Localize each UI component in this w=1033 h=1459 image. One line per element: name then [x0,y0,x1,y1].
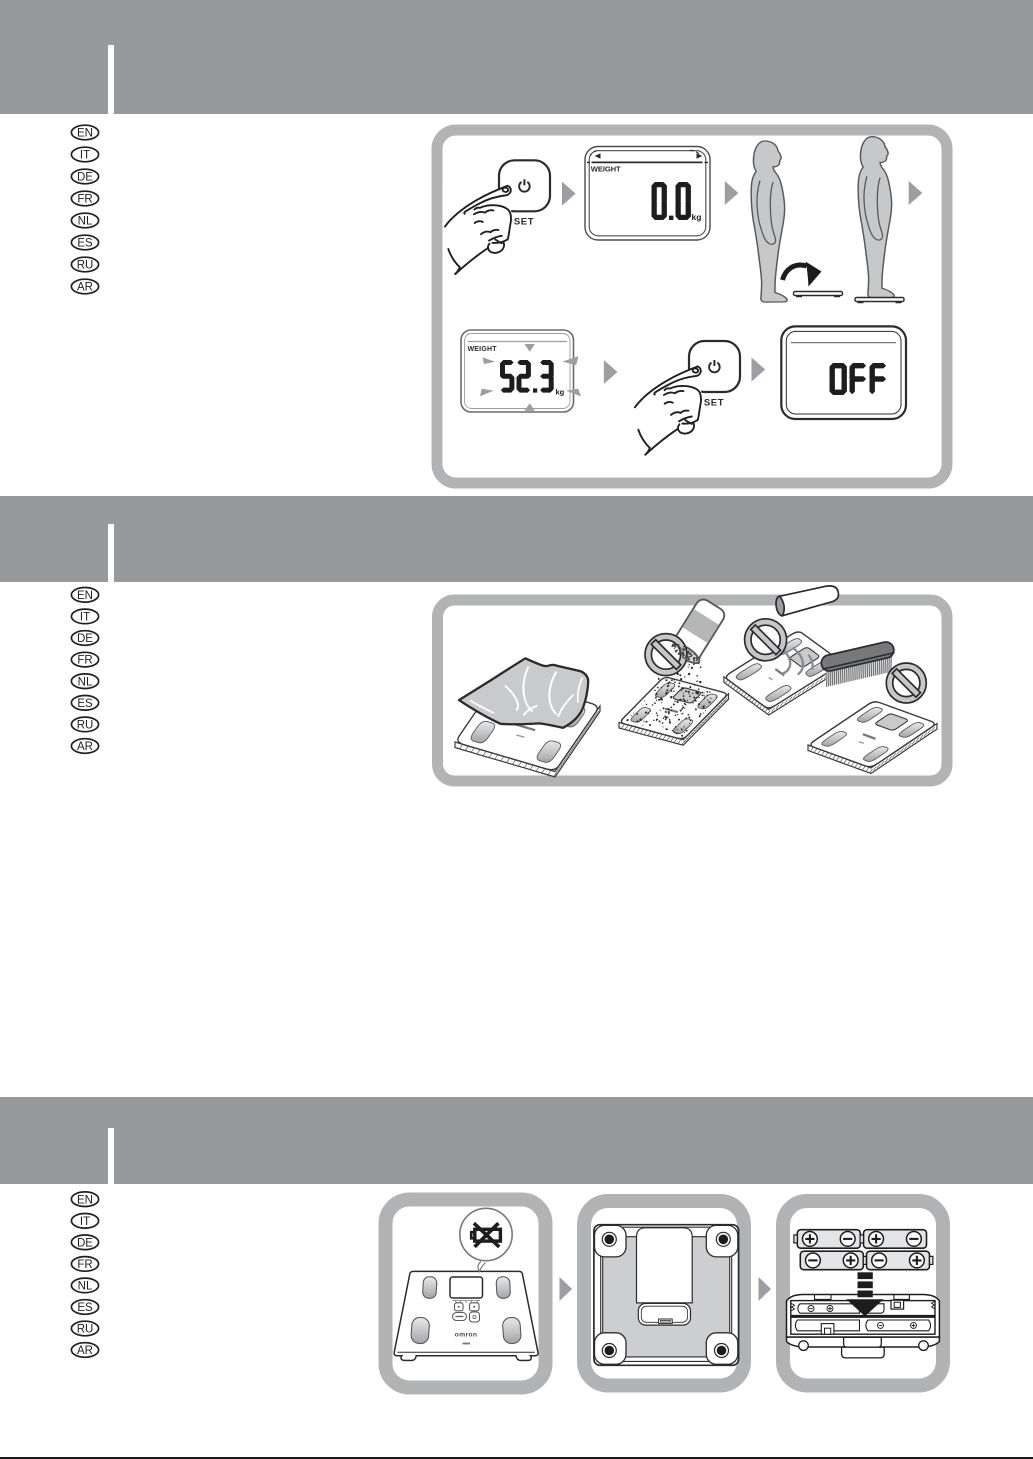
svg-text:DE: DE [77,172,93,184]
svg-text:omron: omron [455,1331,478,1338]
svg-text:AR: AR [77,741,93,753]
svg-text:EN: EN [77,128,93,140]
svg-text:RU: RU [77,719,94,731]
svg-text:ES: ES [77,698,93,710]
svg-text:FR: FR [77,194,92,206]
svg-text:IT: IT [80,150,90,162]
svg-text:FR: FR [77,1259,92,1271]
svg-text:RU: RU [77,1324,94,1336]
svg-text:EN: EN [77,590,93,602]
svg-text:kg: kg [692,212,702,222]
svg-text:DE: DE [77,1237,93,1249]
svg-text:kg: kg [556,388,565,397]
svg-text:AR: AR [77,282,93,294]
svg-text:DE: DE [77,633,93,645]
svg-text:EN: EN [77,1194,93,1206]
svg-text:WEIGHT: WEIGHT [591,165,621,174]
svg-text:NL: NL [78,676,93,688]
svg-text:WEIGHT: WEIGHT [468,346,498,353]
svg-text:NL: NL [78,216,93,228]
svg-text:IT: IT [80,1216,90,1228]
svg-text:SET: SET [704,397,724,408]
svg-text:IT: IT [80,611,90,623]
svg-text:SET: SET [514,217,534,228]
svg-text:RU: RU [77,260,94,272]
svg-text:ES: ES [77,238,93,250]
svg-text:FR: FR [77,655,92,667]
svg-text:AR: AR [77,1345,93,1357]
svg-text:ES: ES [77,1302,93,1314]
svg-text:NL: NL [78,1280,93,1292]
